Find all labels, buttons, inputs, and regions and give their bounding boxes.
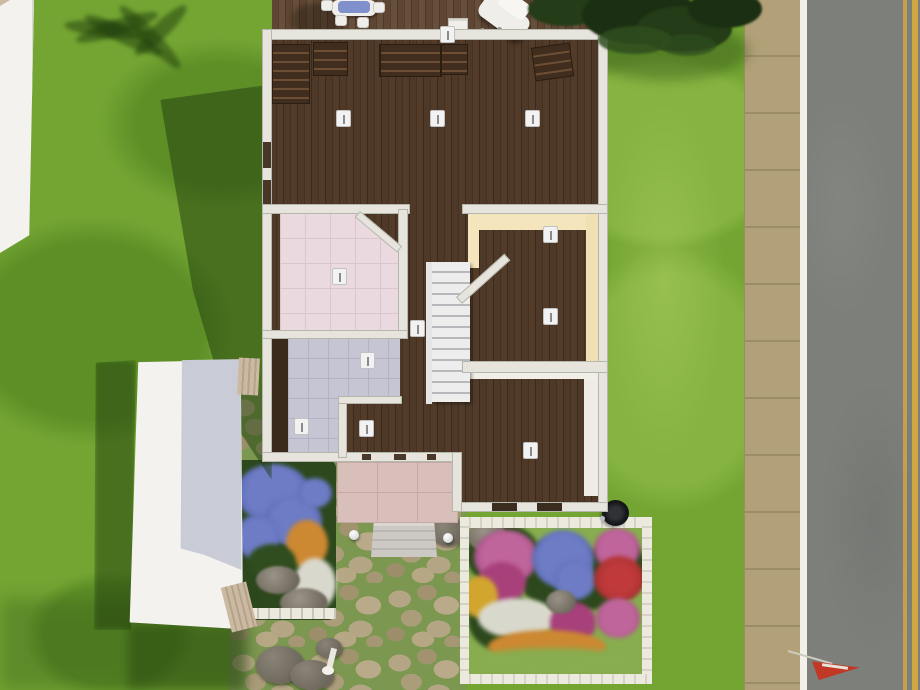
garden-fence: [460, 517, 469, 684]
room-divider-wall: [462, 361, 608, 373]
wall-light[interactable]: [440, 26, 455, 43]
garden-globe-light[interactable]: [443, 533, 453, 543]
wall-light[interactable]: [332, 268, 347, 285]
game-lot-view: [0, 0, 920, 690]
wall-divider: [262, 204, 410, 214]
tan-fence: [237, 357, 260, 395]
dresser[interactable]: [441, 44, 468, 75]
dining-table-top: [338, 1, 370, 13]
wall-north: [268, 29, 608, 40]
dining-chair[interactable]: [357, 17, 369, 28]
window: [537, 503, 562, 511]
blue-flowers: [298, 478, 332, 508]
staircase[interactable]: [432, 262, 470, 402]
wall-light[interactable]: [360, 352, 375, 369]
dining-chair[interactable]: [335, 15, 347, 26]
dining-chair[interactable]: [373, 2, 385, 13]
wall-mid: [452, 452, 462, 512]
red-flowers: [594, 556, 644, 602]
wall-divider: [462, 204, 608, 214]
garden-fence: [642, 517, 652, 684]
window: [263, 142, 271, 168]
pine-tree-foliage: [598, 26, 672, 54]
road-yellow-line: [912, 0, 918, 690]
garden-fence: [460, 674, 652, 684]
hallway-wall: [338, 396, 402, 404]
wall-west: [262, 29, 272, 460]
wall-light[interactable]: [336, 110, 351, 127]
cream-wall-face: [468, 212, 602, 230]
sprinkler-base: [322, 666, 334, 675]
dining-chair[interactable]: [321, 0, 333, 11]
wall-east: [598, 29, 608, 512]
porch-tiles: [337, 462, 458, 523]
cream-wall-face: [468, 212, 479, 268]
flowerbed-fence: [248, 608, 336, 619]
neighbor-roof-strip: [0, 0, 34, 253]
front-door[interactable]: [394, 454, 406, 460]
road-yellow-line: [903, 0, 907, 690]
wall-light[interactable]: [543, 308, 558, 325]
dark-wall-face: [272, 338, 288, 455]
wall-light[interactable]: [410, 320, 425, 337]
wall-light[interactable]: [430, 110, 445, 127]
wall-light[interactable]: [359, 420, 374, 437]
window: [263, 180, 271, 204]
garden-rock: [546, 590, 576, 614]
sunlit-grass-patch: [610, 40, 745, 520]
porch-steps[interactable]: [371, 523, 437, 557]
wall-light[interactable]: [523, 442, 538, 459]
door-mark: [427, 454, 436, 460]
white-wall-face: [466, 372, 600, 379]
garage-shadow: [94, 360, 136, 630]
pine-tree-foliage: [660, 34, 716, 56]
wall-light[interactable]: [294, 418, 309, 435]
dresser[interactable]: [313, 42, 348, 76]
hallway-wall: [338, 398, 347, 458]
garden-grass-strip: [474, 648, 630, 672]
road-edge-line: [800, 0, 807, 690]
wall-south-right: [452, 502, 608, 512]
wall-light[interactable]: [543, 226, 558, 243]
wall-light[interactable]: [525, 110, 540, 127]
wardrobe[interactable]: [379, 44, 442, 77]
garage-roof-shadow: [178, 358, 244, 572]
white-wall-face: [584, 374, 599, 496]
dresser[interactable]: [272, 44, 310, 104]
pink-flowers: [596, 598, 640, 638]
garden-globe-light[interactable]: [349, 530, 359, 540]
bathroom-wall: [398, 209, 408, 338]
dresser[interactable]: [531, 42, 574, 81]
trash-can-highlight: [600, 516, 605, 521]
garden-sprinkler[interactable]: [320, 648, 342, 682]
sidewalk: [744, 0, 800, 690]
door-mark: [362, 454, 371, 460]
window: [492, 503, 517, 511]
staircase-railing: [426, 262, 432, 404]
room-divider-wall: [262, 330, 408, 339]
